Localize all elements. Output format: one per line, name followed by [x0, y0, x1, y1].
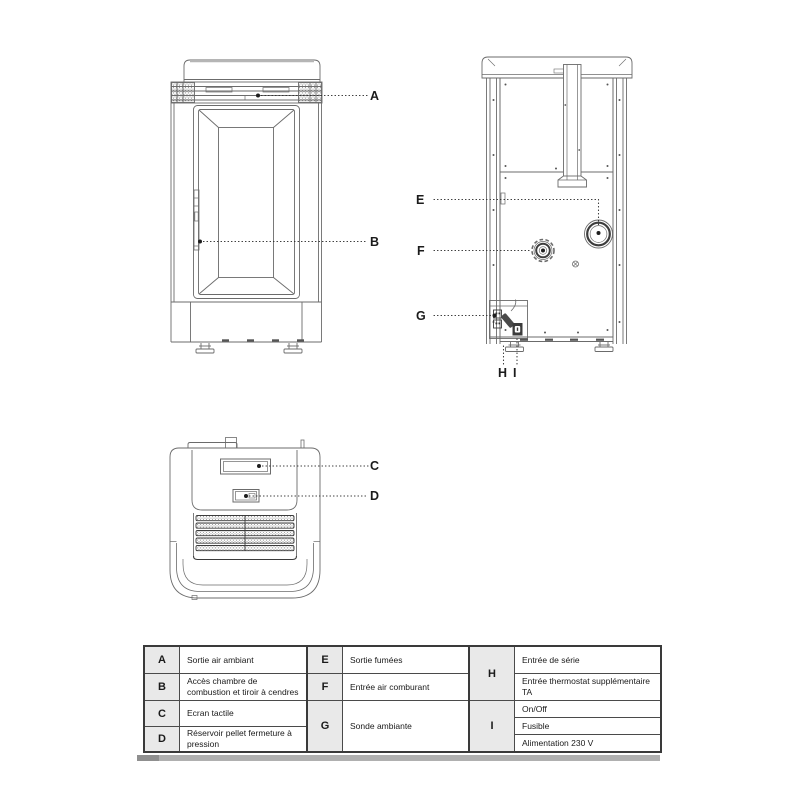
front-view-drawing [171, 60, 322, 353]
callout-label-e: E [416, 193, 424, 207]
legend-desc-d: Réservoir pellet fermeture à pression [180, 727, 306, 751]
top-view-drawing [170, 438, 320, 600]
callout-label-f: F [417, 244, 425, 258]
rear-view-drawing [482, 57, 632, 352]
legend-desc-i1: On/Off [515, 701, 660, 717]
legend-key-h: H [470, 647, 514, 700]
callout-label-b: B [370, 235, 379, 249]
callout-label-a: A [370, 89, 379, 103]
callout-label-d: D [370, 489, 379, 503]
legend-key-f: F [308, 674, 342, 700]
legend-desc-c: Ecran tactile [180, 701, 306, 726]
legend-section-1: A Sortie air ambiant B Accès chambre de … [145, 647, 306, 751]
legend-key-b: B [145, 674, 179, 700]
table-shadow-cap [137, 755, 159, 761]
table-shadow-bar [137, 755, 660, 761]
legend-desc-f: Entrée air comburant [343, 674, 468, 700]
callout-label-g: G [416, 309, 426, 323]
callout-label-c: C [370, 459, 379, 473]
legend-desc-i3: Alimentation 230 V [515, 735, 660, 751]
callout-label-h: H [498, 366, 507, 380]
legend-table: A Sortie air ambiant B Accès chambre de … [143, 645, 662, 753]
legend-key-a: A [145, 647, 179, 673]
legend-key-c: C [145, 701, 179, 726]
callout-label-i: I [513, 366, 516, 380]
legend-desc-g: Sonde ambiante [343, 701, 468, 751]
legend-key-g: G [308, 701, 342, 751]
legend-desc-a: Sortie air ambiant [180, 647, 306, 673]
legend-desc-i2: Fusible [515, 718, 660, 734]
manual-page: A B C D E F G H I A Sortie air ambiant B… [0, 0, 800, 800]
legend-key-i: I [470, 701, 514, 751]
legend-desc-h1: Entrée de série [515, 647, 660, 673]
legend-desc-h2: Entrée thermostat supplémentaire TA [515, 674, 660, 700]
legend-key-d: D [145, 727, 179, 751]
legend-section-3: H Entrée de série Entrée thermostat supp… [468, 647, 660, 751]
legend-desc-b: Accès chambre de combustion et tiroir à … [180, 674, 306, 700]
leader-dots [198, 94, 601, 499]
leader-lines [200, 96, 599, 497]
legend-section-2: E Sortie fumées F Entrée air comburant G… [306, 647, 468, 751]
legend-desc-e: Sortie fumées [343, 647, 468, 673]
legend-key-e: E [308, 647, 342, 673]
